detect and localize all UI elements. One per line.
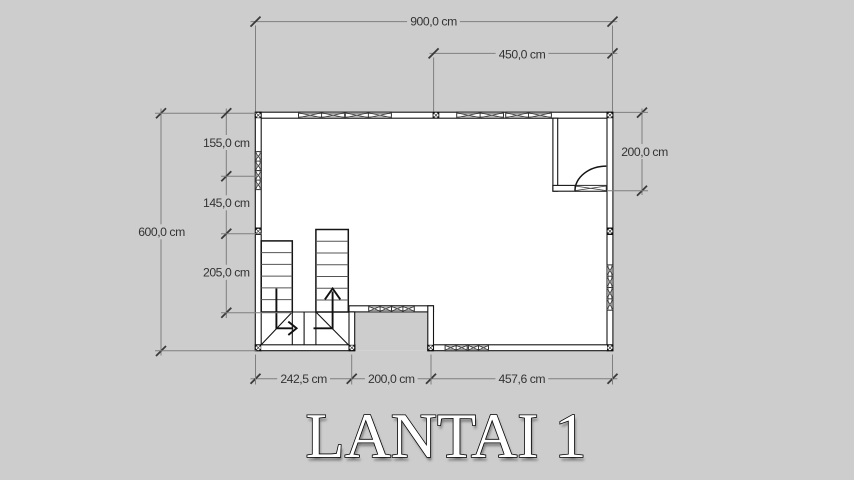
svg-text:450,0 cm: 450,0 cm [499,48,546,62]
svg-text:155,0 cm: 155,0 cm [203,136,250,150]
svg-text:200,0 cm: 200,0 cm [621,145,668,159]
svg-text:LANTAI 1: LANTAI 1 [305,400,586,471]
svg-text:900,0 cm: 900,0 cm [410,15,457,29]
svg-text:457,6 cm: 457,6 cm [499,372,546,386]
svg-text:242,5 cm: 242,5 cm [280,372,327,386]
svg-text:205,0 cm: 205,0 cm [203,266,250,280]
svg-text:600,0 cm: 600,0 cm [138,225,185,239]
svg-text:200,0 cm: 200,0 cm [368,372,415,386]
svg-text:145,0 cm: 145,0 cm [203,196,250,210]
